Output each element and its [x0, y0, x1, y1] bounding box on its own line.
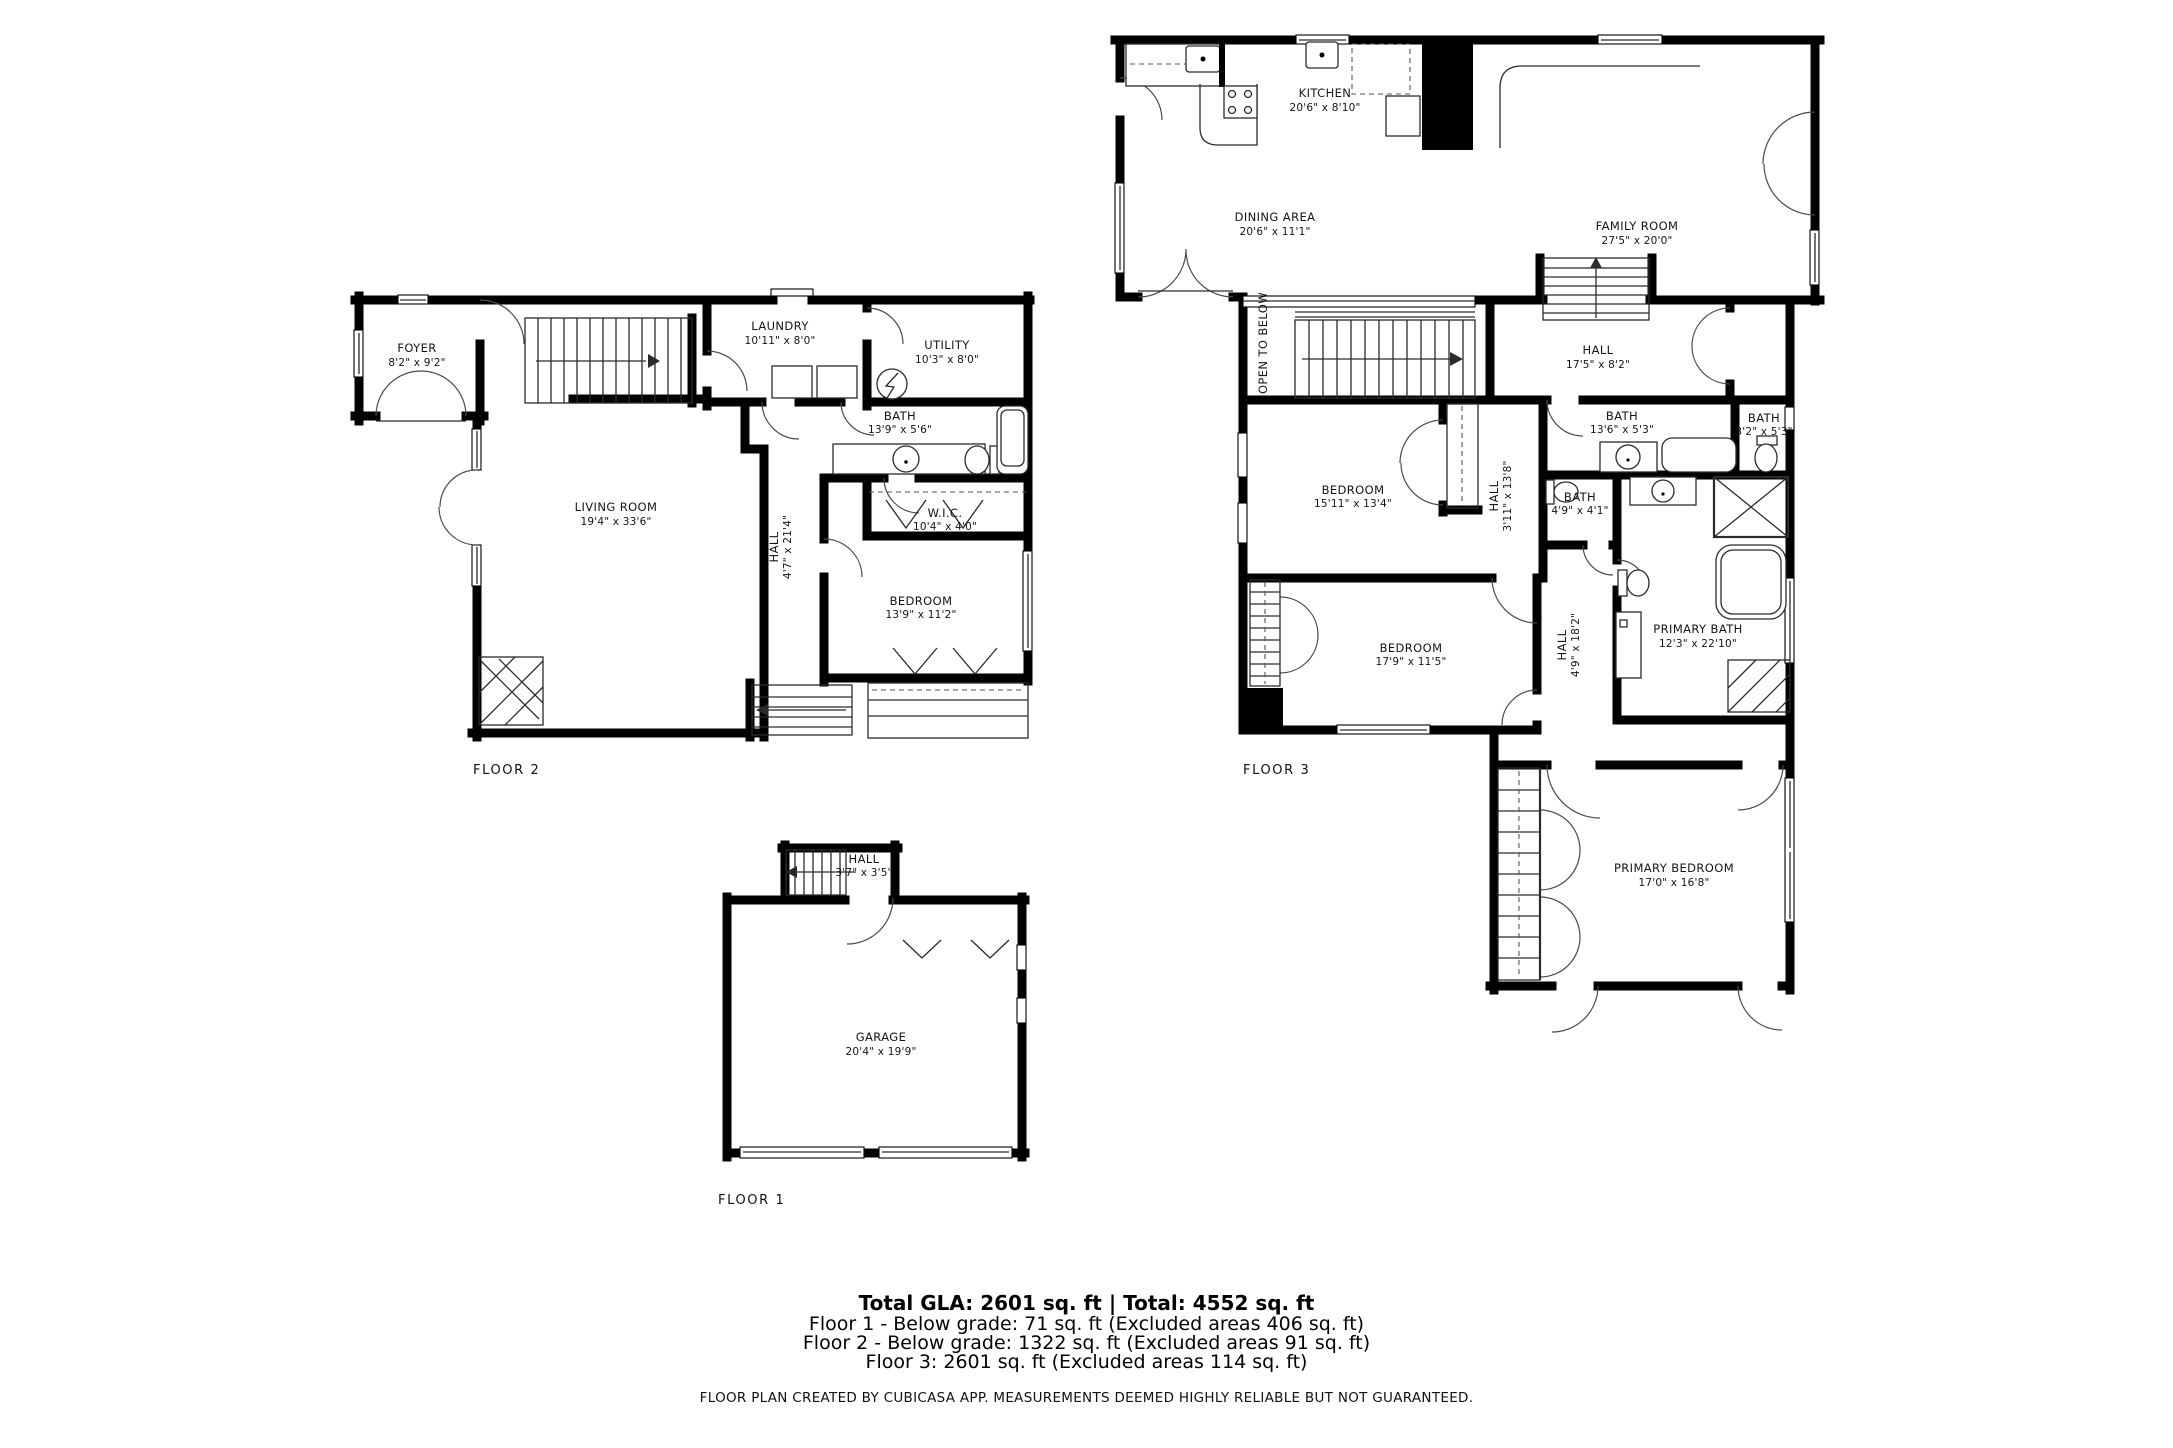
room-label-hall: HALL — [767, 531, 781, 562]
room-label-dining-area: DINING AREA — [1235, 210, 1316, 224]
toilet-tank — [1546, 480, 1554, 504]
family-room-counter — [1500, 66, 1700, 148]
room-dims-primary-bath: 12'3" x 22'10" — [1659, 638, 1737, 650]
room-label-living-room: LIVING ROOM — [575, 500, 658, 514]
floor-plan-page: FOYER 8'2" x 9'2" LAUNDRY 10'11" x 8'0" … — [0, 0, 2173, 1448]
wall-block — [1245, 688, 1283, 730]
sink — [1616, 445, 1640, 469]
floor-3-stairs-down — [1543, 257, 1649, 320]
fireplace-hatch — [479, 657, 543, 725]
room-label-hall-311: HALL — [1487, 480, 1501, 511]
room-label-family-room: FAMILY ROOM — [1596, 219, 1679, 233]
closet-hangers-icon — [903, 940, 1009, 958]
chimney-block — [1422, 38, 1473, 150]
sink — [893, 446, 919, 472]
closet-hangers-icon — [893, 648, 997, 674]
room-label-kitchen: KITCHEN — [1299, 86, 1352, 100]
open-to-below-label: OPEN TO BELOW — [1256, 292, 1270, 394]
room-label-primary-bath: PRIMARY BATH — [1653, 622, 1742, 636]
sink — [1652, 480, 1674, 502]
floor-1-caption: FLOOR 1 — [718, 1193, 785, 1208]
room-dims-bath-32: 3'2" x 5'3" — [1735, 426, 1792, 438]
room-dims-foyer: 8'2" x 9'2" — [388, 357, 445, 369]
room-label-hall-f1: HALL — [849, 852, 880, 866]
room-dims-family-room: 27'5" x 20'0" — [1601, 235, 1672, 247]
room-label-primary-bedroom: PRIMARY BEDROOM — [1614, 861, 1734, 875]
disclaimer-line: FLOOR PLAN CREATED BY CUBICASA APP. MEAS… — [0, 1390, 2173, 1406]
room-label-laundry: LAUNDRY — [751, 319, 809, 333]
washer — [772, 366, 812, 398]
room-dims-bath-136: 13'6" x 5'3" — [1590, 424, 1654, 436]
kitchen-fixtures — [1126, 40, 1700, 148]
toilet — [1627, 570, 1649, 596]
stove — [1224, 86, 1257, 118]
hatch-area — [1728, 660, 1790, 712]
room-dims-bedroom-1511: 15'11" x 13'4" — [1314, 498, 1392, 510]
floor-plan-drawing: FOYER 8'2" x 9'2" LAUNDRY 10'11" x 8'0" … — [0, 0, 2173, 1448]
bedroom-closet — [1447, 404, 1478, 508]
room-dims-hall: 4'7" x 21'4" — [782, 515, 794, 579]
room-label-bath-49: BATH — [1564, 490, 1596, 504]
room-label-bath-32: BATH — [1748, 411, 1780, 425]
room-dims-hall-175: 17'5" x 8'2" — [1566, 359, 1630, 371]
wardrobe — [1250, 580, 1280, 686]
room-label-bedroom-1511: BEDROOM — [1322, 483, 1385, 497]
floor-2-deck — [868, 683, 1028, 738]
room-label-garage: GARAGE — [856, 1030, 907, 1044]
room-label-bath: BATH — [884, 409, 916, 423]
room-dims-bedroom: 13'9" x 11'2" — [885, 609, 956, 621]
room-label-bedroom: BEDROOM — [890, 594, 953, 608]
corridor-closet — [1498, 768, 1540, 980]
floor-3-area-line: Floor 3: 2601 sq. ft (Excluded areas 114… — [0, 1353, 2173, 1372]
floor-2-door-arcs — [376, 300, 919, 577]
room-dims-wic: 10'4" x 4'0" — [913, 521, 977, 533]
dishwasher — [1352, 44, 1410, 94]
room-label-utility: UTILITY — [924, 338, 970, 352]
room-dims-bedroom-179: 17'9" x 11'5" — [1375, 656, 1446, 668]
room-label-hall-49: HALL — [1555, 629, 1569, 660]
dryer — [817, 366, 857, 398]
floor-3-caption: FLOOR 3 — [1243, 763, 1310, 778]
floor-3-plan: KITCHEN 20'6" x 8'10" DINING AREA 20'6" … — [1115, 35, 1820, 1032]
room-dims-bath-49: 4'9" x 4'1" — [1551, 505, 1608, 517]
floor-3-stairwell — [1295, 312, 1475, 398]
floor-1-walls — [727, 845, 1025, 1157]
room-dims-hall-49: 4'9" x 18'2" — [1570, 613, 1582, 677]
floor-2-staircase — [525, 318, 692, 403]
room-label-bath-136: BATH — [1606, 409, 1638, 423]
room-label-hall-175: HALL — [1583, 343, 1614, 357]
room-label-wic: W.I.C. — [928, 506, 963, 520]
room-label-foyer: FOYER — [397, 341, 436, 355]
floor-2-caption: FLOOR 2 — [473, 763, 540, 778]
water-heater — [877, 369, 907, 399]
room-dims-primary-bedroom: 17'0" x 16'8" — [1638, 877, 1709, 889]
room-dims-hall-311: 3'11" x 13'8" — [1502, 460, 1514, 531]
primary-bathtub — [1716, 545, 1786, 619]
floor-3-door-arcs — [1120, 78, 1815, 1032]
room-dims-bath: 13'9" x 5'6" — [868, 424, 932, 436]
fridge — [1386, 96, 1420, 136]
floor-2-plan: FOYER 8'2" x 9'2" LAUNDRY 10'11" x 8'0" … — [354, 289, 1032, 778]
room-dims-garage: 20'4" x 19'9" — [845, 1046, 916, 1058]
toilet — [1755, 444, 1777, 472]
bathtub — [1662, 438, 1736, 472]
room-dims-dining-area: 20'6" x 11'1" — [1239, 226, 1310, 238]
floor-1-door-arc — [847, 898, 893, 944]
room-dims-kitchen: 20'6" x 8'10" — [1289, 102, 1360, 114]
room-dims-hall-f1: 3'7" x 3'5" — [835, 867, 892, 879]
floor-1-plan: HALL 3'7" x 3'5" GARAGE 20'4" x 19'9" FL… — [718, 845, 1026, 1208]
room-dims-living-room: 19'4" x 33'6" — [580, 516, 651, 528]
room-label-bedroom-179: BEDROOM — [1380, 641, 1443, 655]
toilet-tank — [1618, 570, 1627, 596]
total-gla-line: Total GLA: 2601 sq. ft | Total: 4552 sq.… — [0, 1292, 2173, 1315]
area-summary: Total GLA: 2601 sq. ft | Total: 4552 sq.… — [0, 1292, 2173, 1372]
room-dims-utility: 10'3" x 8'0" — [915, 354, 979, 366]
toilet — [965, 446, 989, 474]
room-dims-laundry: 10'11" x 8'0" — [744, 335, 815, 347]
